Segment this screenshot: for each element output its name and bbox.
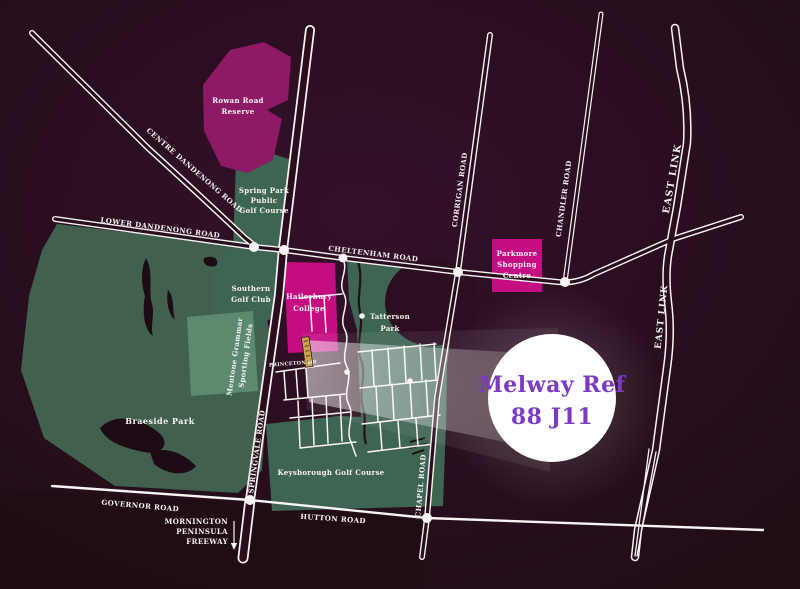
southern-golf-label: Southern xyxy=(232,284,271,293)
keysborough-golf-label: Keysborough Golf Course xyxy=(278,468,385,477)
braeside-park-label: Braeside Park xyxy=(125,416,195,426)
tatterson-park-label: Tatterson xyxy=(370,312,410,321)
svg-text:Golf Course: Golf Course xyxy=(239,206,289,215)
svg-text:88 J11: 88 J11 xyxy=(511,404,593,430)
melway-callout-circle xyxy=(488,334,616,462)
svg-text:Shopping: Shopping xyxy=(497,260,537,269)
svg-text:MORNINGTON: MORNINGTON xyxy=(165,517,229,526)
melway-reference-map: CENTRE DANDENONG ROAD LOWER DANDENONG RO… xyxy=(0,0,800,589)
svg-text:Park: Park xyxy=(380,324,399,333)
svg-text:Melway Ref: Melway Ref xyxy=(478,372,626,398)
haileybury-label: Haileybury xyxy=(286,292,332,301)
svg-text:Public: Public xyxy=(251,196,278,205)
svg-text:FREEWAY: FREEWAY xyxy=(186,537,228,546)
parkmore-label: Parkmore xyxy=(497,249,538,258)
rowan-reserve-label: Rowan Road xyxy=(212,96,264,105)
svg-text:College: College xyxy=(293,304,325,313)
svg-text:PENINSULA: PENINSULA xyxy=(176,527,228,536)
svg-text:Reserve: Reserve xyxy=(222,107,255,116)
svg-text:Golf Club: Golf Club xyxy=(231,295,271,304)
svg-text:Centre: Centre xyxy=(503,271,532,280)
spring-park-label: Spring Park xyxy=(239,186,289,195)
